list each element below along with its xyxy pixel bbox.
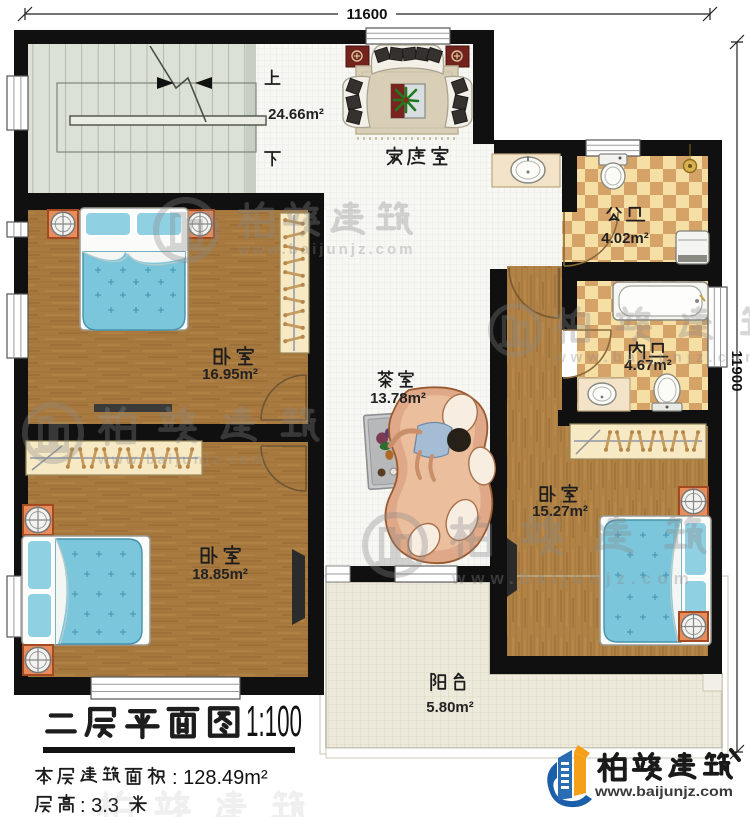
svg-text:: 128.49m²: : 128.49m² (172, 767, 268, 789)
svg-text:18.85m²: 18.85m² (192, 566, 248, 583)
svg-text:www.baijunjz.com: www.baijunjz.com (553, 349, 750, 366)
svg-text:24.66m²: 24.66m² (268, 106, 324, 123)
svg-text:15.27m²: 15.27m² (532, 503, 588, 520)
svg-text:16.95m²: 16.95m² (202, 366, 258, 383)
svg-text:4.02m²: 4.02m² (601, 230, 649, 247)
svg-text:1:100: 1:100 (246, 697, 302, 746)
svg-text:www.baijunjz.com: www.baijunjz.com (237, 241, 415, 258)
svg-text:11600: 11600 (347, 6, 388, 23)
svg-text:www.baijunjz.com: www.baijunjz.com (451, 569, 695, 588)
svg-text:www.baijunjz.com: www.baijunjz.com (594, 784, 733, 799)
svg-text:www.baijunjz.com: www.baijunjz.com (97, 451, 267, 467)
svg-text:13.78m²: 13.78m² (370, 390, 426, 407)
svg-text:5.80m²: 5.80m² (426, 699, 474, 716)
